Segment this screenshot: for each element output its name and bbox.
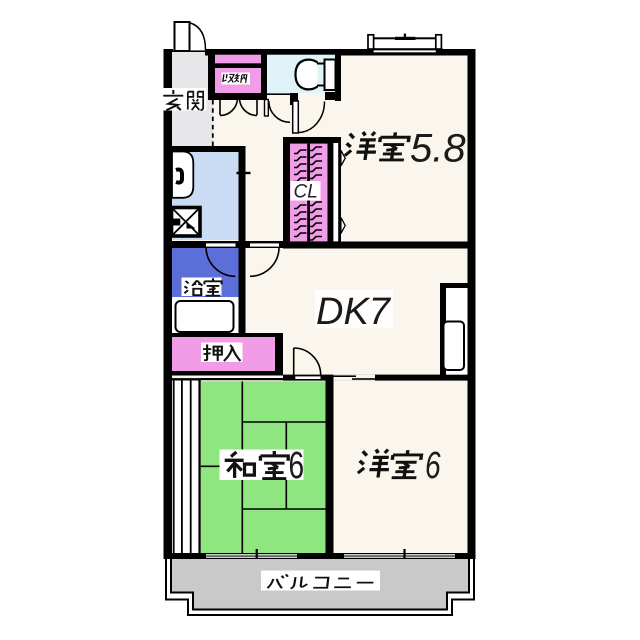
svg-text:5.8: 5.8 — [410, 127, 466, 171]
svg-text:6: 6 — [425, 445, 441, 487]
svg-text:CL: CL — [294, 182, 318, 203]
svg-text:6: 6 — [289, 445, 305, 487]
svg-text:DK7: DK7 — [316, 291, 392, 333]
